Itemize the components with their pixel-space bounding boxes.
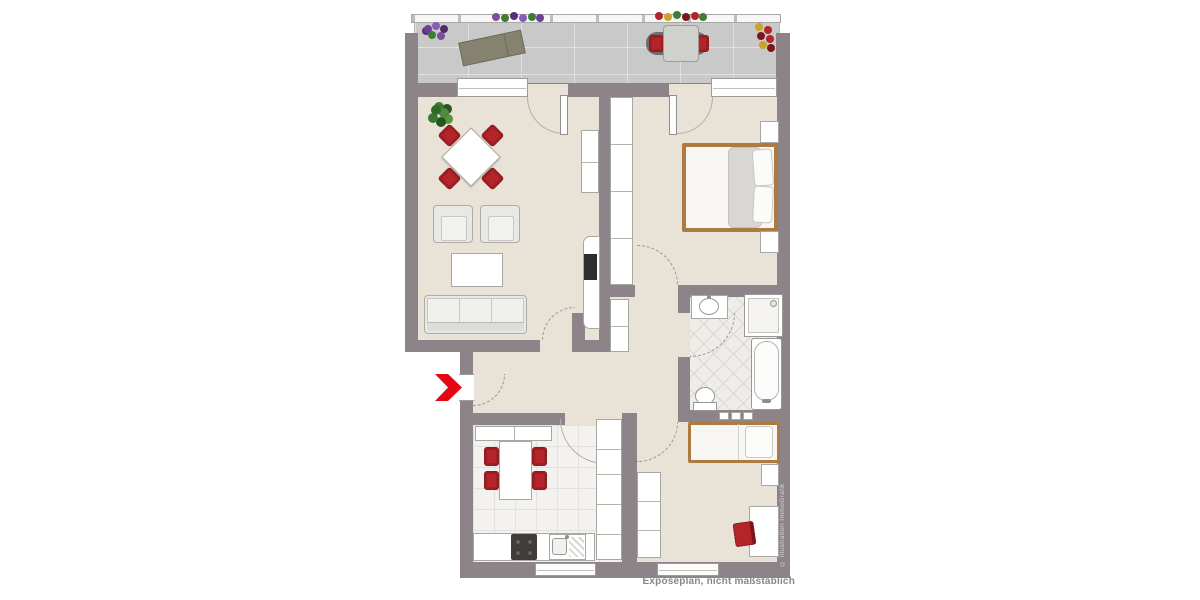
wall-living-bedroom-divider <box>599 83 610 343</box>
flower-pot-right <box>755 23 763 31</box>
bathtub-basin <box>754 341 779 401</box>
wall-kitchen-west <box>460 413 473 578</box>
wall-kitchen-east <box>622 413 637 568</box>
bedroom-wardrobe <box>610 97 633 285</box>
bathroom-door-gap <box>678 313 690 357</box>
hall-closet <box>610 299 629 352</box>
nightstand-top <box>760 121 779 143</box>
living-plant <box>431 105 441 115</box>
nightstand-bottom <box>760 231 779 253</box>
kids-wardrobe <box>637 472 661 558</box>
wall-living-south-a <box>405 340 540 352</box>
kids-nightstand <box>761 464 779 486</box>
kitchen-table <box>499 441 532 500</box>
shower-drain <box>770 300 777 307</box>
sofa <box>424 295 527 334</box>
bedroom-door-gap <box>635 285 678 297</box>
armchair-right <box>480 205 520 243</box>
bath-niche-3 <box>743 412 753 420</box>
balcony-railing <box>411 14 781 23</box>
bathtub-faucet <box>762 399 771 403</box>
balcony-wall-right <box>776 33 790 85</box>
stove <box>511 534 537 560</box>
single-bed-pillow <box>745 426 773 458</box>
plan-caption: Exposéplan, nicht maßstäblich <box>600 576 795 587</box>
lounger-backrest-line <box>503 34 509 56</box>
wall-left <box>405 83 418 352</box>
coffee-table <box>451 253 503 287</box>
bath-niche-2 <box>731 412 741 420</box>
wall-kitchen-north <box>460 413 565 425</box>
kitchen-chair-se <box>532 471 547 490</box>
bath-niche-1 <box>719 412 729 420</box>
kitchen-sink-basin <box>552 538 567 555</box>
kitchen-chair-ne <box>532 447 547 466</box>
washbasin <box>699 298 719 315</box>
bistro-seat-left <box>649 35 664 52</box>
kitchen-cabinet-column <box>596 419 622 560</box>
kitchen-chair-nw <box>484 447 499 466</box>
tv-lowboard <box>583 236 600 329</box>
kitchen-chair-sw <box>484 471 499 490</box>
bed-pillow-top <box>752 148 775 186</box>
toilet-tank <box>693 402 717 411</box>
balcony-door-leaf-living <box>560 95 568 135</box>
balcony-door-leaf-bedroom <box>669 95 677 135</box>
living-door-gap <box>540 340 572 352</box>
floorplan-canvas: { "texts": { "caption": "Exposéplan, nic… <box>0 0 1200 600</box>
tv <box>584 254 597 280</box>
shower <box>744 294 783 337</box>
armchair-left <box>433 205 473 243</box>
planter-left-flowers <box>424 25 432 33</box>
window-kids <box>657 563 719 576</box>
wall-bedroom-south-a <box>599 285 635 297</box>
copyright-credit: © Illustration ImmoGrafik <box>779 462 786 567</box>
bed-pillow-bottom <box>752 186 774 224</box>
balcony-wall-left <box>405 33 418 85</box>
planter-box-right-flowers <box>655 12 663 20</box>
window-living <box>457 78 528 97</box>
bistro-table <box>663 25 699 62</box>
entrance-arrow <box>435 371 463 404</box>
window-kitchen <box>535 563 596 576</box>
washbasin-faucet <box>707 295 711 299</box>
single-bed-duvet-line <box>738 424 739 460</box>
wall-bath-west-upper <box>678 297 690 313</box>
sideboard <box>581 130 599 193</box>
kids-desk-chair <box>732 521 756 548</box>
kids-door-gap <box>637 410 678 422</box>
planter-box-left-flowers <box>492 13 500 21</box>
kitchen-top-counter <box>475 426 552 441</box>
kitchen-drainboard <box>569 537 584 557</box>
window-bedroom <box>711 78 777 97</box>
